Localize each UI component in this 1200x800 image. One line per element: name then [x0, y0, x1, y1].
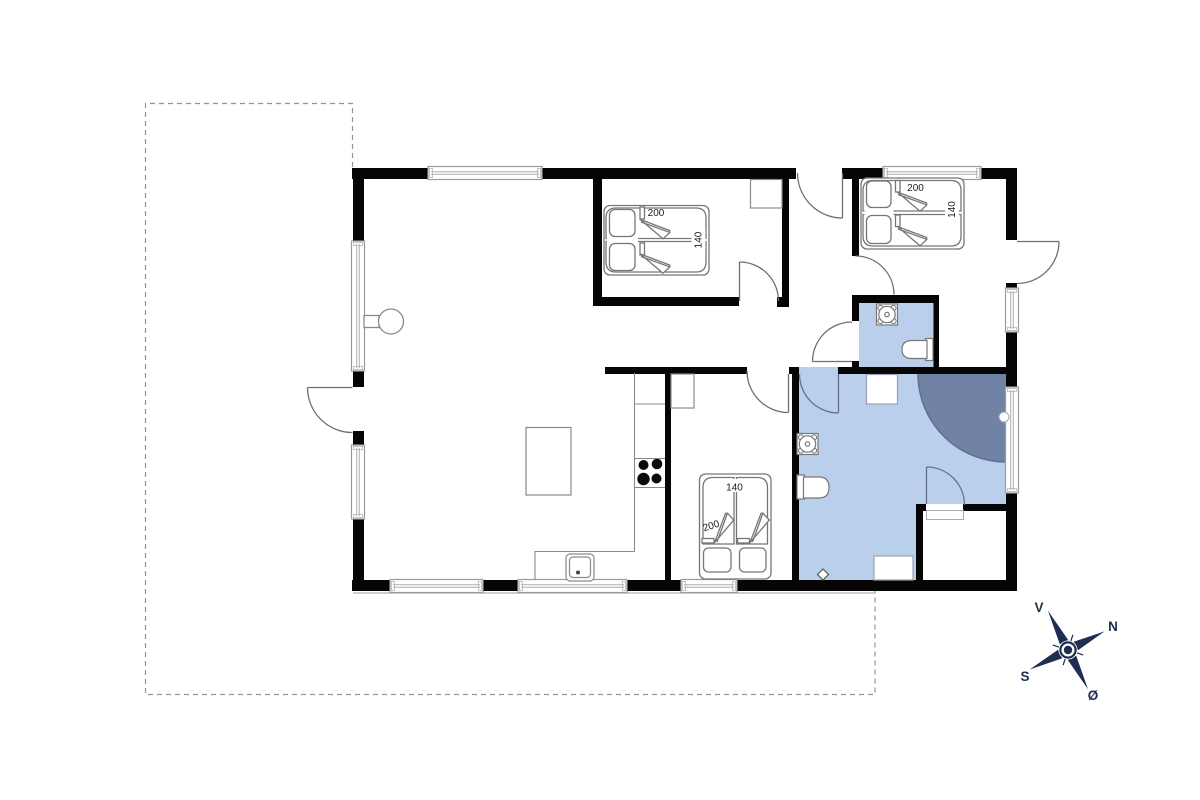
svg-text:Ø: Ø	[1088, 688, 1099, 703]
svg-text:140: 140	[726, 483, 743, 494]
svg-text:200: 200	[907, 183, 924, 194]
svg-text:S: S	[1020, 669, 1029, 684]
svg-text:N: N	[1108, 619, 1118, 634]
svg-text:200: 200	[648, 208, 665, 219]
svg-text:140: 140	[694, 231, 705, 248]
svg-text:140: 140	[947, 201, 958, 218]
svg-text:V: V	[1034, 600, 1043, 615]
